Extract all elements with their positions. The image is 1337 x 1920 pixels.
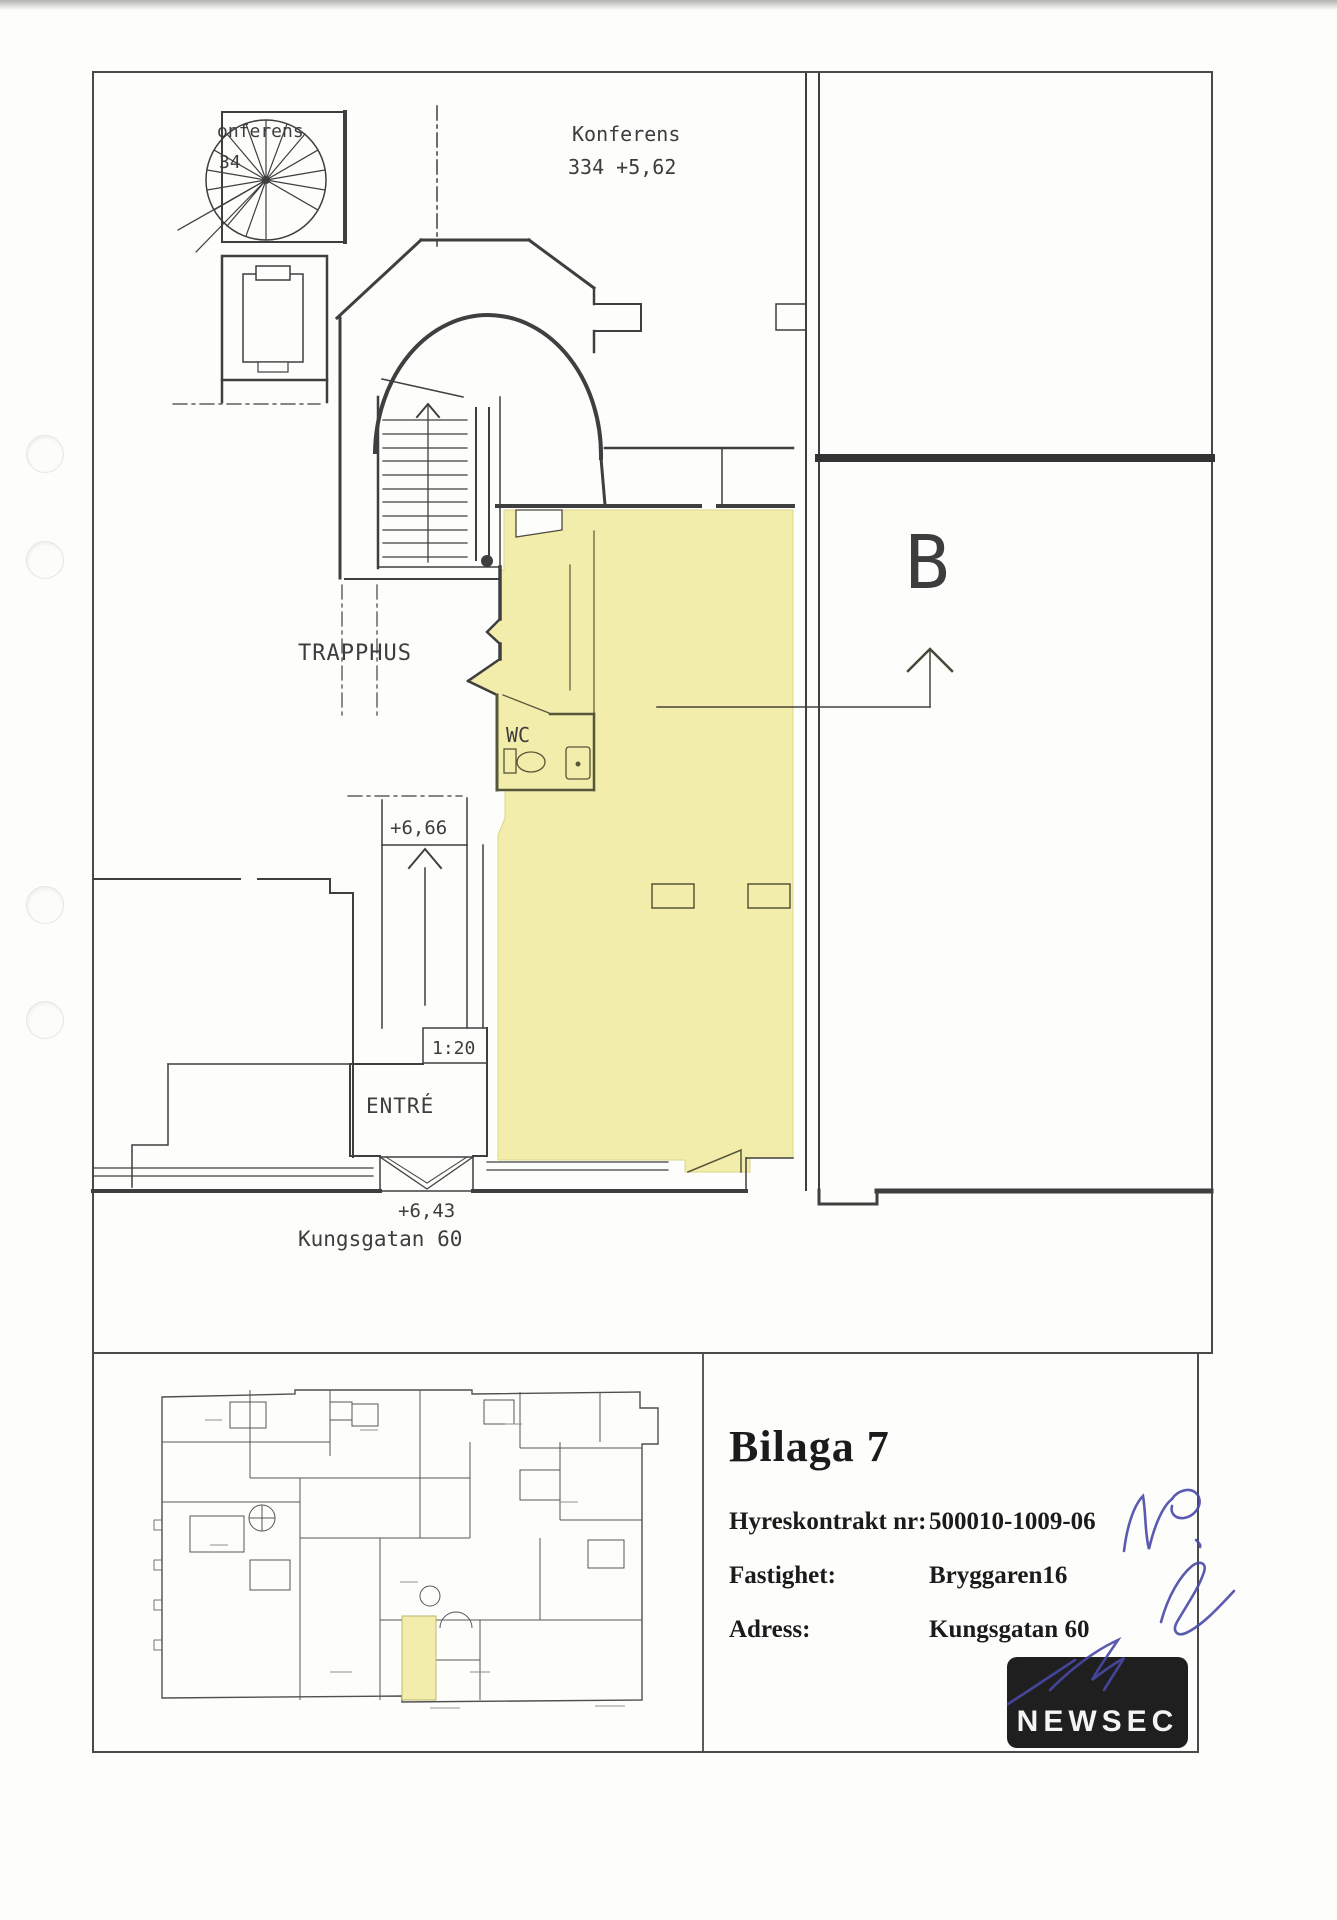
label-level-street: +6,43 <box>398 1200 455 1222</box>
overview-mini-plan <box>154 1390 658 1708</box>
west-walls <box>93 879 353 1187</box>
scanned-lease-appendix-page: onferens 34 Konferens 334 +5,62 TRAPPHUS… <box>0 0 1337 1920</box>
right-party-wall <box>776 74 1211 1190</box>
label-konferens-info: 334 +5,62 <box>568 155 676 179</box>
corridor-up-arrow <box>409 849 441 868</box>
mini-leased-highlight <box>402 1616 436 1700</box>
label-konferens: Konferens <box>572 122 680 146</box>
label-section-b: B <box>905 520 950 606</box>
leased-area-highlight <box>468 510 793 1172</box>
label-wc: WC <box>506 723 530 747</box>
label-konferens-fragment2: 34 <box>219 152 241 173</box>
label-street: Kungsgatan 60 <box>298 1227 462 1251</box>
stair-flight <box>345 379 500 579</box>
elevator-shaft <box>173 256 327 404</box>
label-stair-ratio: 1:20 <box>432 1038 475 1059</box>
floor-plan-drawing: onferens 34 Konferens 334 +5,62 TRAPPHUS… <box>0 0 1337 1920</box>
label-level-inner: +6,66 <box>390 817 447 839</box>
label-trapphus: TRAPPHUS <box>298 641 412 666</box>
label-entre: ENTRÉ <box>366 1093 434 1118</box>
label-konferens-fragment: onferens <box>217 121 304 142</box>
shop-back-wall <box>497 448 793 506</box>
newsec-logo-text: NEWSEC <box>1007 1705 1188 1739</box>
newsec-logo: NEWSEC <box>1007 1657 1188 1748</box>
